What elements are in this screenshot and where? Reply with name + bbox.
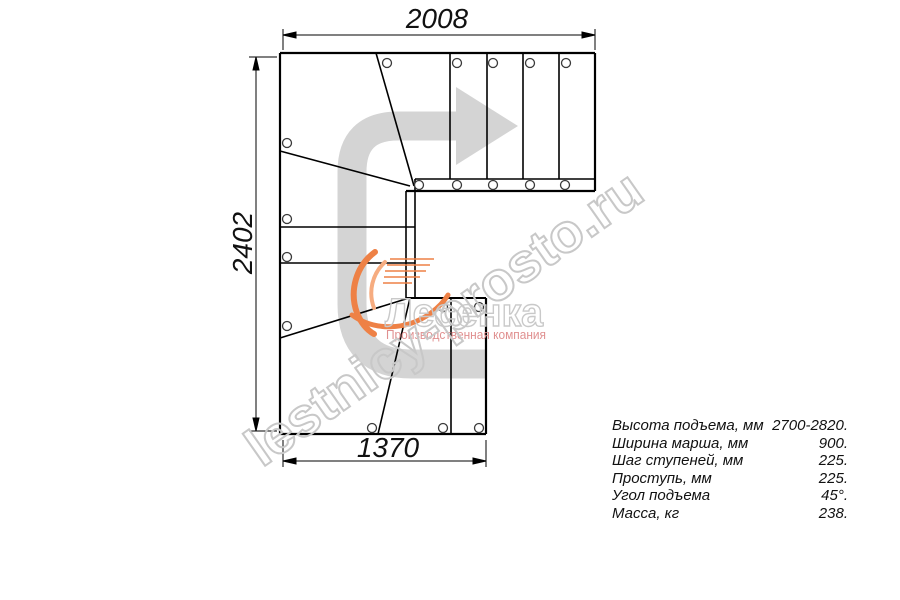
- stair-plan-page: 2008 2402 1370: [0, 0, 900, 600]
- screw-hole: [526, 181, 535, 190]
- screw-hole: [562, 59, 571, 68]
- screw-hole: [383, 59, 392, 68]
- spec-row: Высота подъема, мм 2700-2820.: [612, 417, 848, 435]
- dimension-top-value: 2008: [405, 3, 469, 34]
- spec-value: 225.: [819, 470, 848, 488]
- dimension-left-value: 2402: [227, 211, 258, 275]
- screw-hole: [415, 181, 424, 190]
- screw-hole: [489, 59, 498, 68]
- screw-hole: [561, 181, 570, 190]
- screw-hole: [526, 59, 535, 68]
- spec-value: 225.: [819, 452, 848, 470]
- spec-row: Ширина марша, мм 900.: [612, 435, 848, 453]
- spec-label: Высота подъема, мм: [612, 417, 764, 435]
- spec-value: 900.: [819, 435, 848, 453]
- spec-label: Шаг ступеней, мм: [612, 452, 743, 470]
- spec-row: Угол подъема 45°.: [612, 487, 848, 505]
- spec-value: 2700-2820.: [772, 417, 848, 435]
- specifications-table: Высота подъема, мм 2700-2820. Ширина мар…: [612, 417, 848, 523]
- screw-hole: [453, 59, 462, 68]
- spec-label: Ширина марша, мм: [612, 435, 748, 453]
- dim-arrow-icon: [253, 57, 259, 70]
- spec-value: 45°.: [821, 487, 848, 505]
- spec-row: Масса, кг 238.: [612, 505, 848, 523]
- dim-arrow-icon: [582, 32, 595, 38]
- dimension-bottom-value: 1370: [357, 432, 420, 463]
- spec-label: Угол подъема: [612, 487, 710, 505]
- spec-value: 238.: [819, 505, 848, 523]
- screw-hole: [439, 424, 448, 433]
- spec-row: Шаг ступеней, мм 225.: [612, 452, 848, 470]
- dim-arrow-icon: [473, 458, 486, 464]
- screw-hole: [283, 253, 292, 262]
- screw-hole: [475, 424, 484, 433]
- spec-label: Масса, кг: [612, 505, 679, 523]
- screw-hole: [283, 215, 292, 224]
- screw-hole: [283, 139, 292, 148]
- spec-row: Проступь, мм 225.: [612, 470, 848, 488]
- screw-hole: [489, 181, 498, 190]
- screw-hole: [453, 181, 462, 190]
- spec-label: Проступь, мм: [612, 470, 712, 488]
- dim-arrow-icon: [283, 32, 296, 38]
- screw-hole: [283, 322, 292, 331]
- logo-flame-inner-arc: [371, 262, 385, 308]
